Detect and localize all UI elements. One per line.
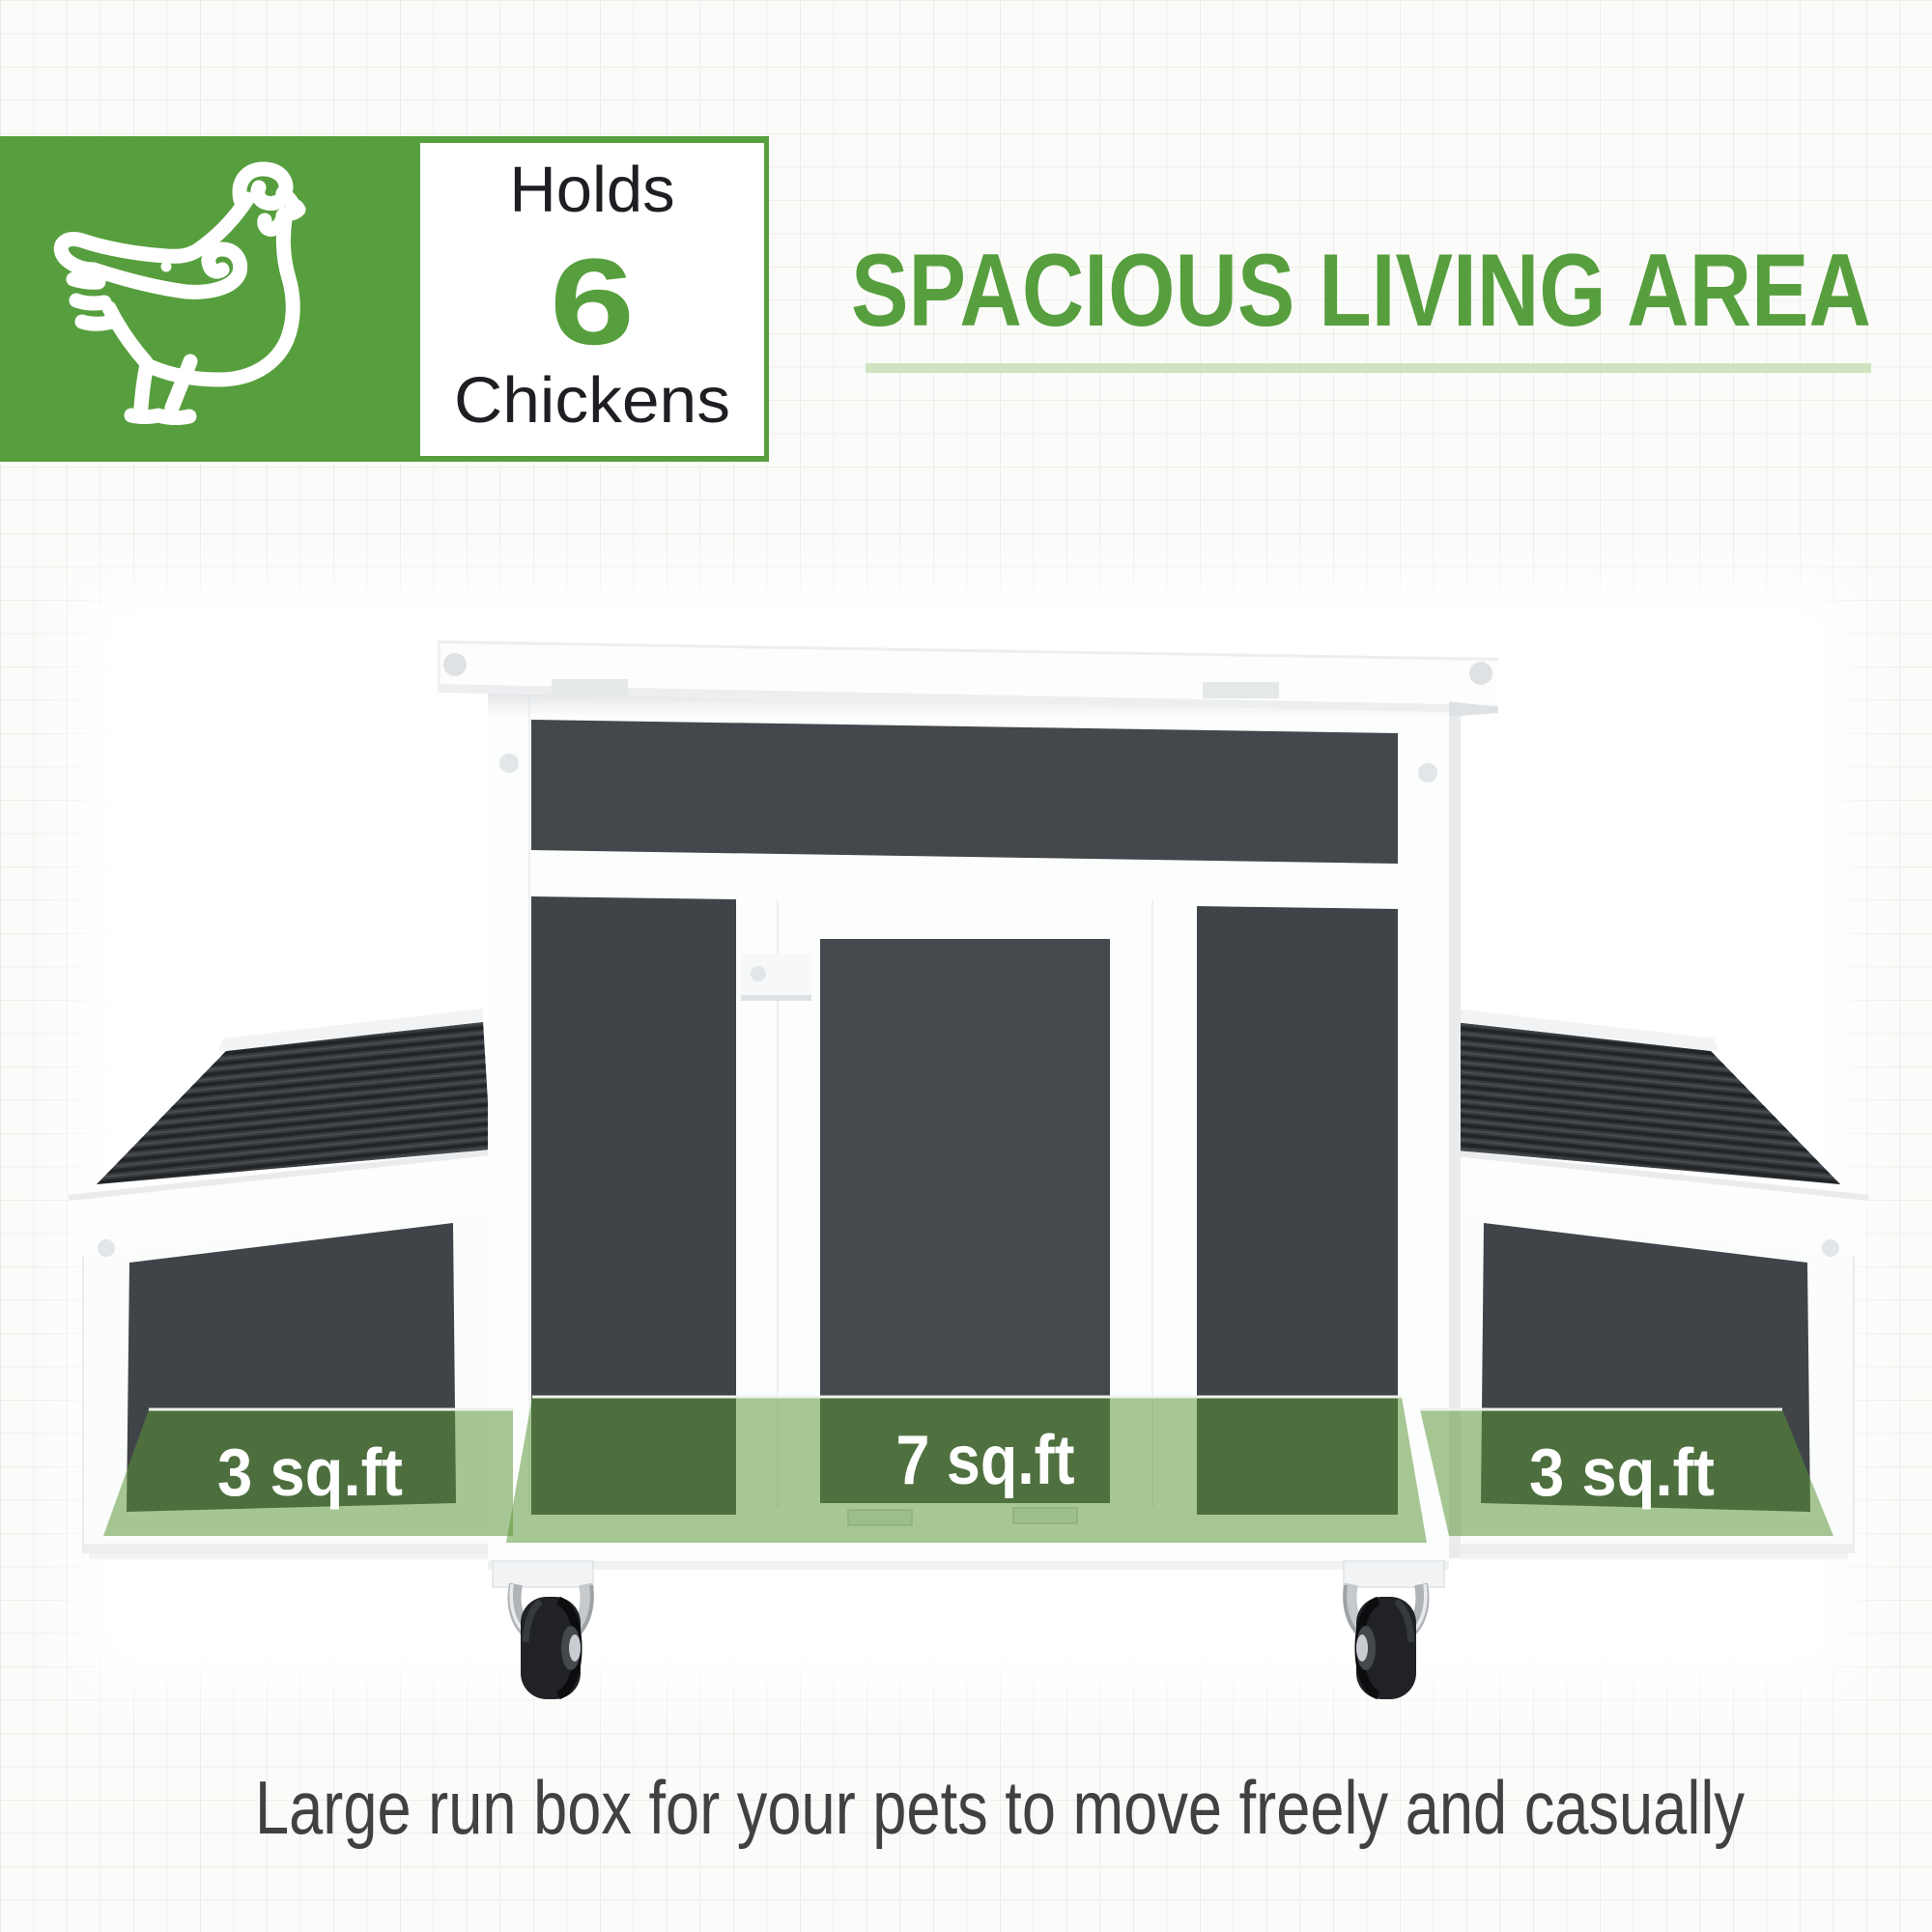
svg-text:3 sq.ft: 3 sq.ft [217,1435,403,1510]
svg-text:3 sq.ft: 3 sq.ft [1529,1435,1715,1510]
svg-text:7 sq.ft: 7 sq.ft [896,1422,1075,1499]
svg-text:6: 6 [550,233,635,370]
svg-text:SPACIOUS LIVING AREA: SPACIOUS LIVING AREA [851,232,1871,348]
svg-text:Holds: Holds [509,154,674,226]
svg-text:Chickens: Chickens [454,364,730,437]
svg-text:Large run box for your pets to: Large run box for your pets to move free… [255,1765,1745,1850]
